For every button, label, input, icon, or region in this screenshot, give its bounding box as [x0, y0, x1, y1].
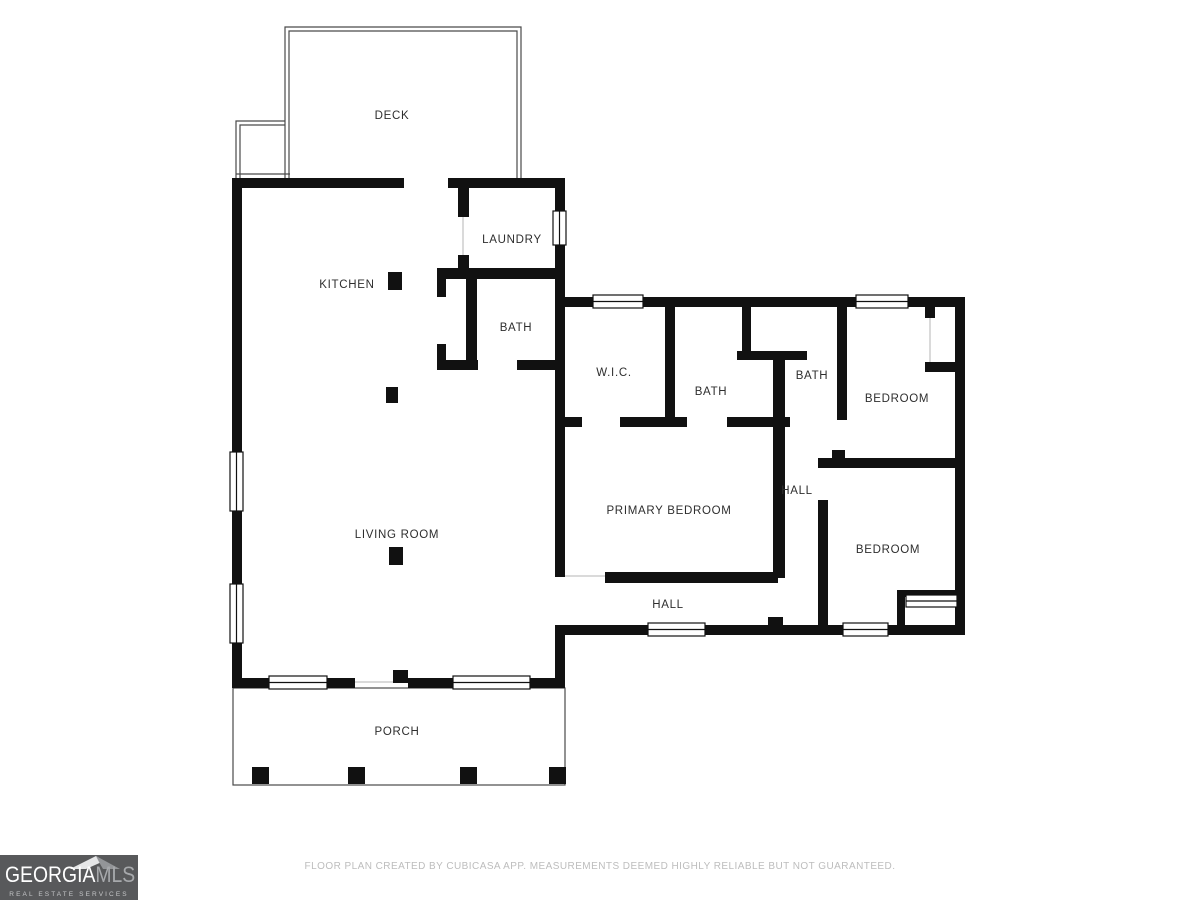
posts — [252, 272, 566, 784]
window — [230, 452, 243, 511]
wall-segment — [437, 268, 565, 279]
wall-segment — [517, 360, 565, 370]
deck-step-inner — [240, 125, 285, 178]
room-label-living-room: LIVING ROOM — [355, 529, 439, 541]
post — [386, 387, 398, 403]
wall-segment — [466, 279, 477, 362]
window — [269, 676, 327, 689]
window — [856, 295, 908, 308]
wall-nub — [832, 450, 845, 459]
logo-text-mls: MLS — [95, 862, 135, 887]
window — [648, 623, 705, 636]
wall-segment — [437, 279, 446, 297]
wall-segment — [773, 420, 785, 578]
wall-segment — [555, 297, 565, 577]
wall-segment — [773, 357, 785, 420]
wall-segment — [565, 417, 582, 427]
deck-outline-inner — [289, 31, 517, 178]
wall-segment — [665, 307, 675, 417]
room-label-bath-middle: BATH — [695, 386, 728, 398]
room-label-bath-right: BATH — [796, 370, 829, 382]
front-door-stub — [393, 670, 408, 683]
room-label-hall-vertical: HALL — [781, 485, 813, 497]
porch-post — [252, 767, 269, 784]
room-label-wic: W.I.C. — [596, 367, 632, 379]
wall-segment — [818, 500, 828, 625]
deck-outline-outer — [285, 27, 521, 178]
walls — [232, 178, 965, 688]
closet-stub — [925, 307, 935, 318]
window — [230, 584, 243, 643]
wall-segment — [605, 572, 778, 583]
floor-plan-page: DECK LAUNDRY KITCHEN BATH W.I.C. BATH BA… — [0, 0, 1200, 900]
wall-segment — [837, 307, 847, 420]
porch-post — [348, 767, 365, 784]
window — [843, 623, 888, 636]
disclaimer-text: FLOOR PLAN CREATED BY CUBICASA APP. MEAS… — [0, 861, 1200, 872]
window — [593, 295, 643, 308]
window — [453, 676, 530, 689]
closet-wall — [897, 590, 905, 635]
logo-tagline: REAL ESTATE SERVICES — [0, 891, 138, 898]
room-label-bedroom-bottom: BEDROOM — [856, 544, 920, 556]
room-label-bedroom-top: BEDROOM — [865, 393, 929, 405]
georgia-mls-logo: GEORGIAMLS REAL ESTATE SERVICES — [0, 855, 138, 900]
wall-segment — [437, 360, 478, 370]
wall-segment — [818, 458, 965, 468]
room-label-primary-bedroom: PRIMARY BEDROOM — [606, 505, 731, 517]
room-label-hall-bottom: HALL — [652, 599, 684, 611]
porch-post — [460, 767, 477, 784]
room-label-bath-main: BATH — [500, 322, 533, 334]
wall-segment — [458, 188, 469, 217]
post — [388, 272, 402, 290]
post — [389, 547, 403, 565]
window — [553, 211, 566, 245]
logo-wordmark: GEORGIAMLS — [5, 864, 135, 886]
closet-wall — [925, 362, 965, 372]
room-label-deck: DECK — [375, 110, 410, 122]
room-label-porch: PORCH — [374, 726, 419, 738]
deck-step-outer — [236, 121, 285, 178]
logo-text-georgia: GEORGIA — [5, 862, 95, 887]
wall-segment — [620, 417, 687, 427]
hall-stub — [768, 617, 783, 635]
wall-segment — [448, 178, 565, 188]
room-label-kitchen: KITCHEN — [319, 279, 374, 291]
wall-segment — [737, 351, 807, 360]
wall-segment — [232, 178, 404, 188]
deck-outline — [236, 27, 521, 178]
floor-plan-drawing: DECK LAUNDRY KITCHEN BATH W.I.C. BATH BA… — [0, 0, 1200, 900]
porch-post — [549, 767, 566, 784]
room-label-laundry: LAUNDRY — [482, 234, 542, 246]
wall-segment — [742, 307, 751, 353]
closet-shelf — [906, 595, 957, 607]
